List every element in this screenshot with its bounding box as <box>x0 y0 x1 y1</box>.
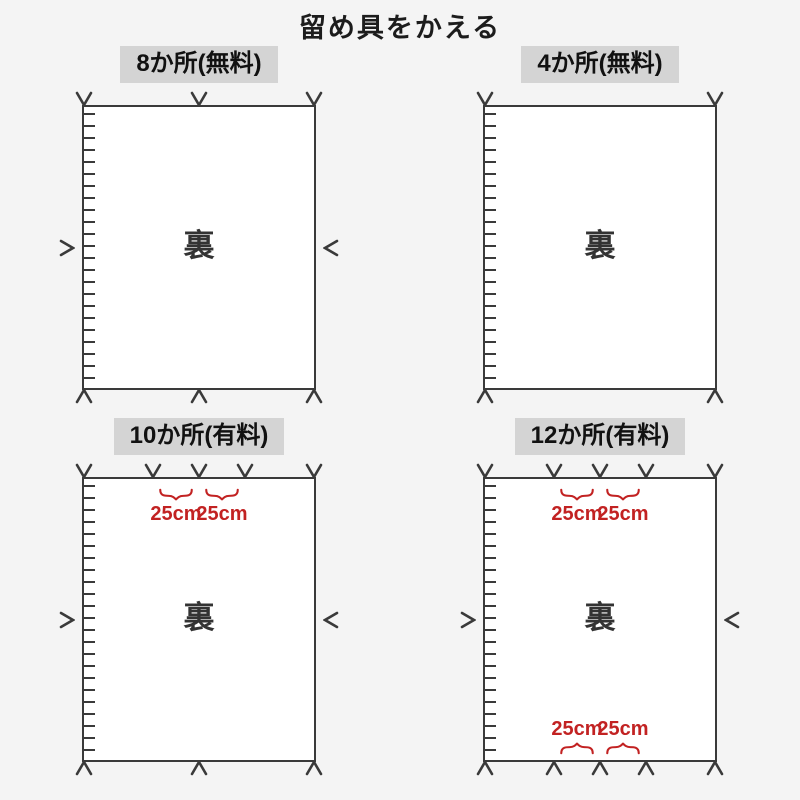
fastener-mark-icon <box>235 463 255 479</box>
fastener-mark-icon <box>74 463 94 479</box>
panel-heading-12-places: 12か所(有料) <box>515 418 686 455</box>
fastener-mark-icon <box>475 388 495 404</box>
dimension-label: 25cm <box>551 503 602 525</box>
dimension-label: 25cm <box>150 503 201 525</box>
fastener-mark-icon <box>705 760 725 776</box>
fastener-mark-icon <box>74 91 94 107</box>
page-title: 留め具をかえる <box>0 6 800 45</box>
fastener-mark-icon <box>189 388 209 404</box>
fastener-mark-icon <box>590 760 610 776</box>
dimension-brace-group: 25cm <box>557 488 597 525</box>
fastener-mark-icon <box>705 463 725 479</box>
dimension-brace-group: 25cm <box>156 488 196 525</box>
dimension-brace-group: 25cm <box>202 488 242 525</box>
panel-header-row: 8か所(無料) <box>82 46 316 83</box>
fastener-mark-icon <box>705 91 725 107</box>
back-side-label: 裏 <box>84 592 314 637</box>
back-side-label: 裏 <box>485 592 715 637</box>
fastener-mark-icon <box>460 610 476 630</box>
fastener-mark-icon <box>323 238 339 258</box>
panel-heading-10-places: 10か所(有料) <box>114 418 285 455</box>
dimension-brace-icon <box>156 488 196 502</box>
diagram-page: 留め具をかえる 8か所(無料) 4か所(無料) 10か所(有料) 12か所(有料… <box>0 0 800 800</box>
futon-back-diagram-8-places: 裏 <box>82 105 316 390</box>
futon-back-diagram-10-places: 裏 25cm25cm <box>82 477 316 762</box>
fastener-mark-icon <box>544 760 564 776</box>
dimension-brace-group: 25cm <box>603 718 643 755</box>
dimension-brace-icon <box>603 488 643 502</box>
dimension-label: 25cm <box>196 503 247 525</box>
dimension-label: 25cm <box>551 718 602 740</box>
panel-header-row: 10か所(有料) <box>82 418 316 455</box>
panel-header-row: 12か所(有料) <box>483 418 717 455</box>
futon-back-diagram-12-places: 裏 25cm25cm25cm25cm <box>483 477 717 762</box>
dimension-brace-icon <box>202 488 242 502</box>
fastener-mark-icon <box>143 463 163 479</box>
fastener-mark-icon <box>304 91 324 107</box>
dimension-label: 25cm <box>597 718 648 740</box>
fastener-mark-icon <box>304 388 324 404</box>
fastener-mark-icon <box>475 91 495 107</box>
panel-heading-4-places: 4か所(無料) <box>521 46 678 83</box>
fastener-mark-icon <box>724 610 740 630</box>
dimension-brace-icon <box>557 488 597 502</box>
fastener-mark-icon <box>636 760 656 776</box>
fastener-mark-icon <box>189 463 209 479</box>
fastener-mark-icon <box>189 91 209 107</box>
fastener-mark-icon <box>304 463 324 479</box>
fastener-mark-icon <box>74 760 94 776</box>
fastener-mark-icon <box>475 463 495 479</box>
dimension-brace-group: 25cm <box>557 718 597 755</box>
fastener-mark-icon <box>323 610 339 630</box>
back-side-label: 裏 <box>84 220 314 265</box>
panel-header-row: 4か所(無料) <box>483 46 717 83</box>
dimension-label: 25cm <box>597 503 648 525</box>
fastener-mark-icon <box>59 610 75 630</box>
back-side-label: 裏 <box>485 220 715 265</box>
fastener-mark-icon <box>189 760 209 776</box>
panel-heading-8-places: 8か所(無料) <box>120 46 277 83</box>
fastener-mark-icon <box>475 760 495 776</box>
fastener-mark-icon <box>74 388 94 404</box>
fastener-mark-icon <box>304 760 324 776</box>
fastener-mark-icon <box>590 463 610 479</box>
fastener-mark-icon <box>636 463 656 479</box>
dimension-brace-icon <box>603 741 643 755</box>
dimension-brace-group: 25cm <box>603 488 643 525</box>
fastener-mark-icon <box>59 238 75 258</box>
futon-back-diagram-4-places: 裏 <box>483 105 717 390</box>
dimension-brace-icon <box>557 741 597 755</box>
fastener-mark-icon <box>544 463 564 479</box>
fastener-mark-icon <box>705 388 725 404</box>
